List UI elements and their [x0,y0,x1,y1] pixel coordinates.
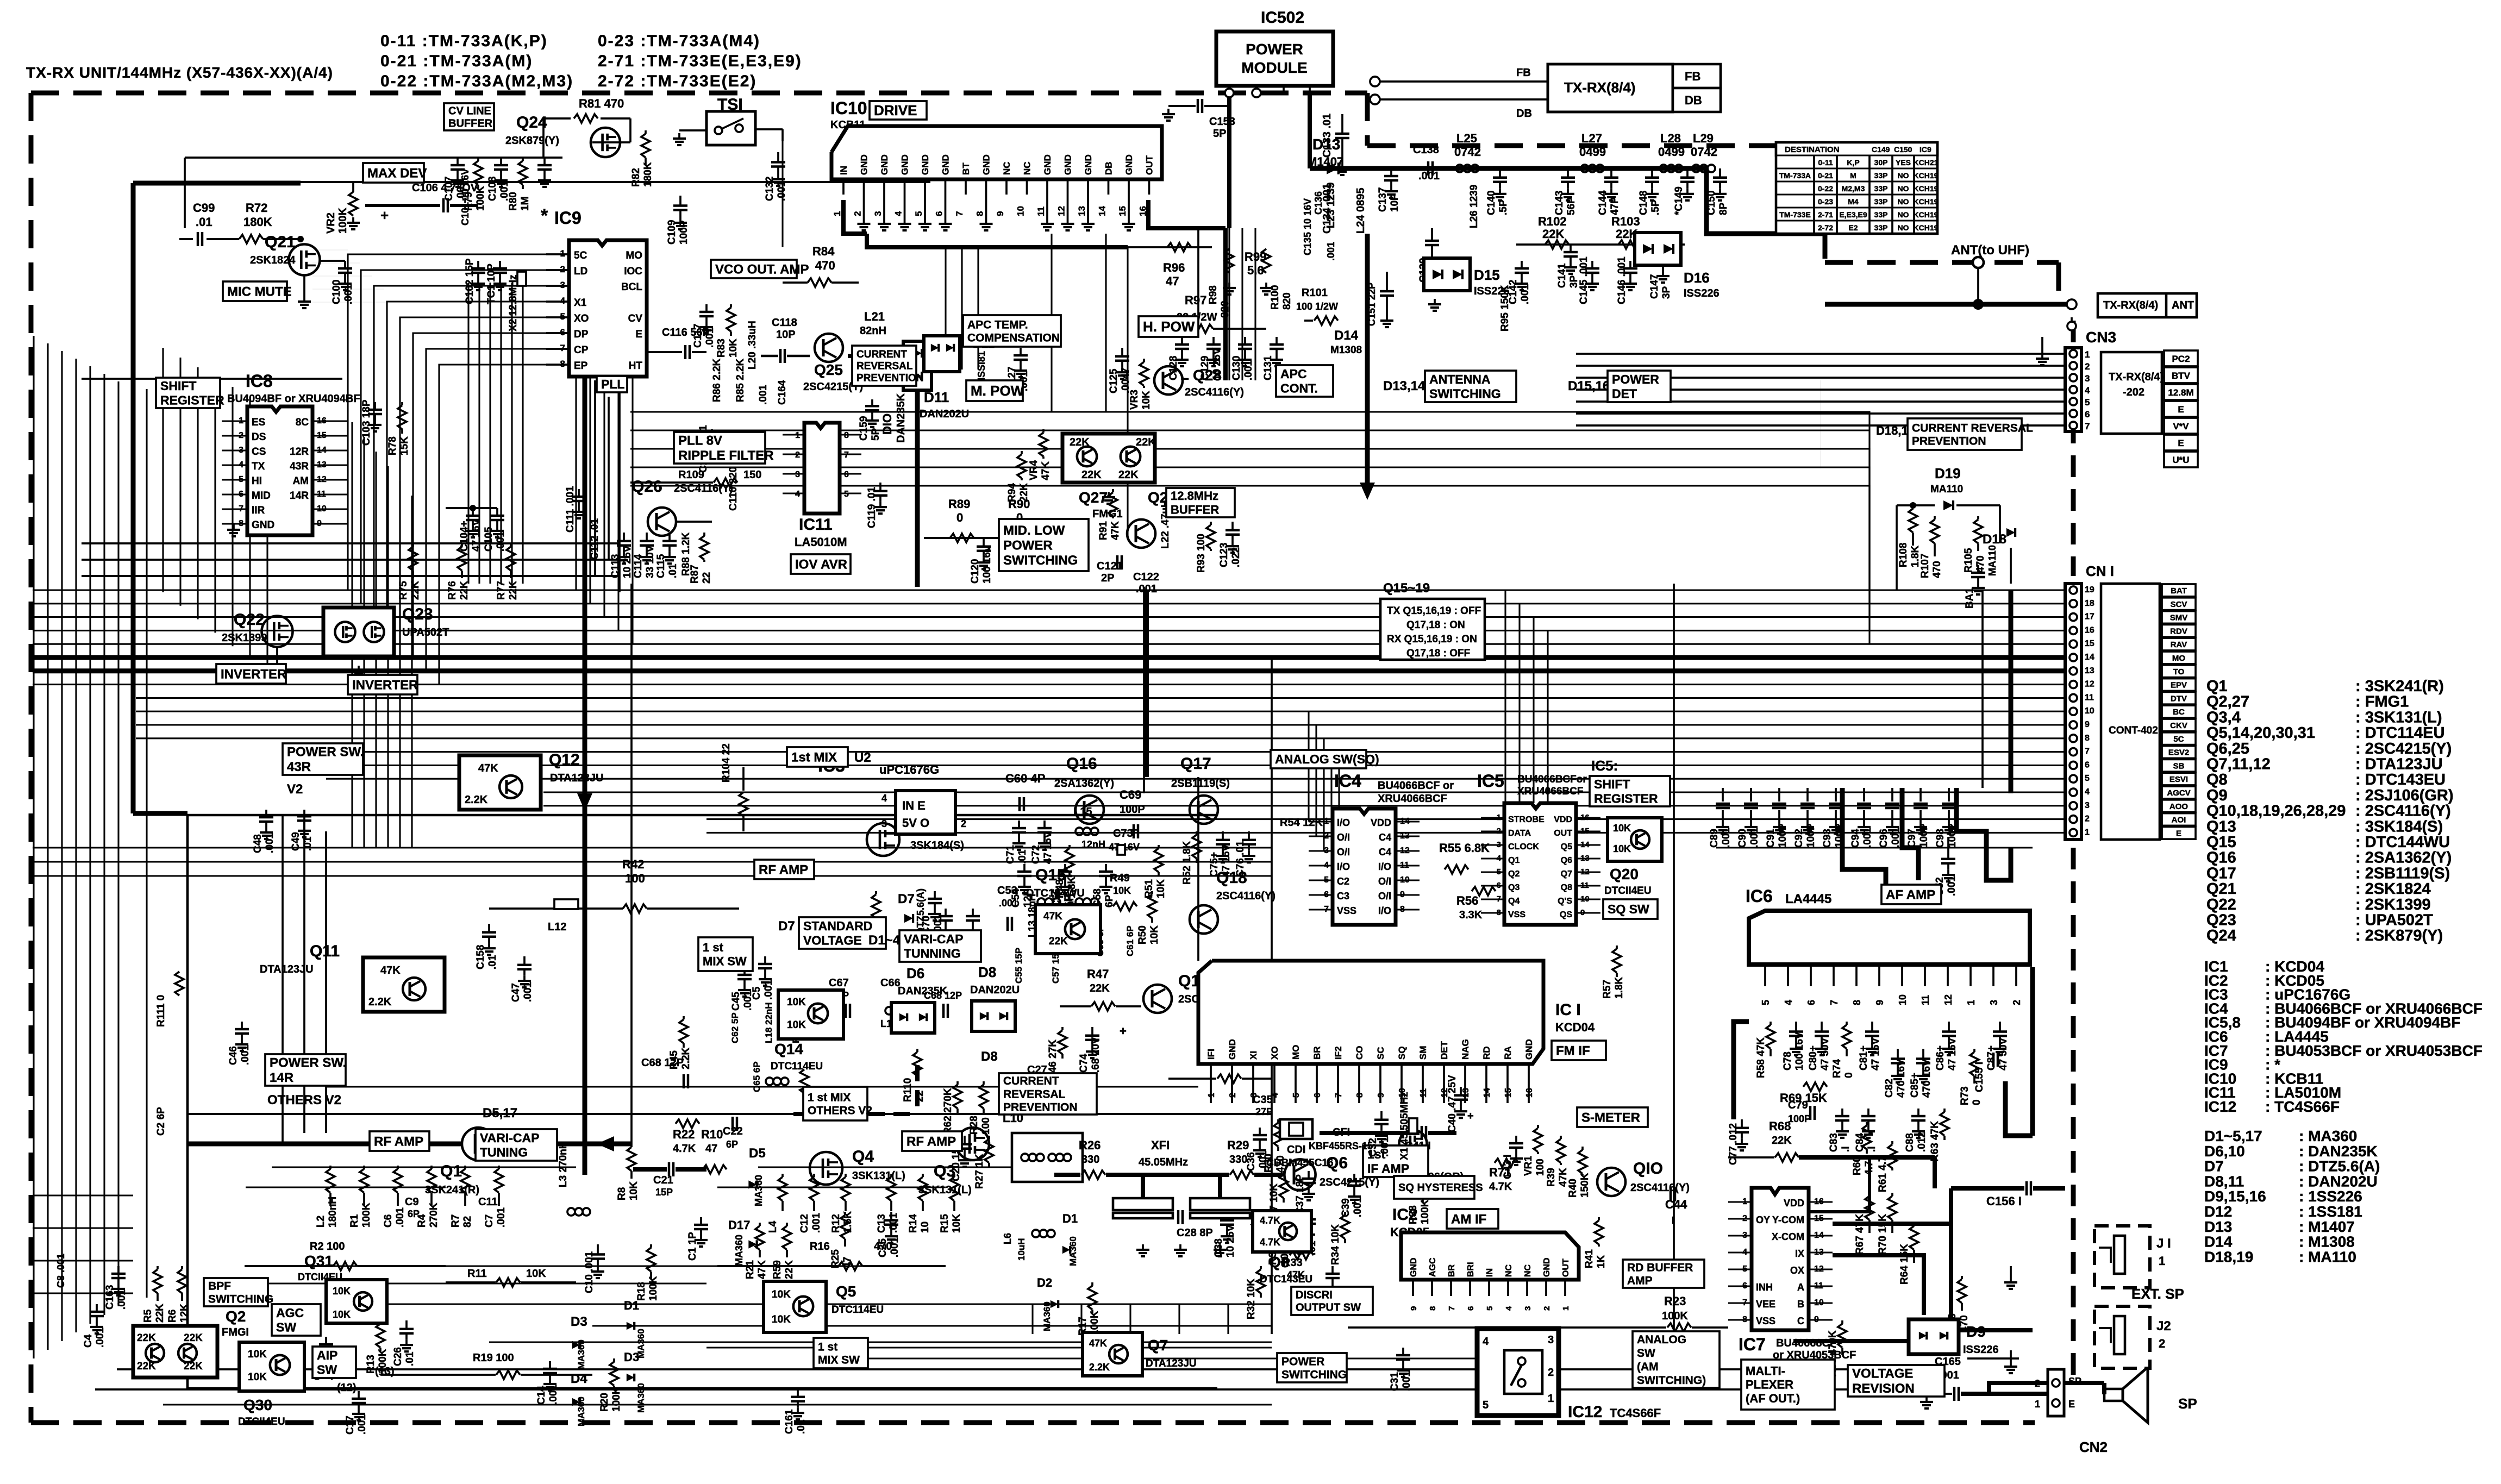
svg-text:C137: C137 [1377,187,1389,212]
svg-text:.001: .001 [889,1237,901,1257]
svg-text:COMPENSATION: COMPENSATION [967,331,1060,344]
svg-text:CONT.: CONT. [1280,381,1318,395]
svg-text:QS: QS [1560,910,1572,919]
svg-text:C1 1P: C1 1P [687,1232,698,1261]
svg-text:ESVI: ESVI [2169,775,2188,784]
svg-text:100 1/2W: 100 1/2W [1296,301,1338,312]
svg-text:R109: R109 [678,469,704,481]
svg-text:ES: ES [252,417,265,428]
svg-text:IC12: IC12 [2204,1098,2236,1115]
svg-text:D12: D12 [2204,1203,2232,1220]
svg-text:SCV: SCV [2171,600,2187,609]
svg-text:PC2: PC2 [2172,354,2190,364]
svg-text:DTC143EU: DTC143EU [1260,1274,1312,1285]
svg-text:E: E [2176,829,2181,838]
svg-text:TX-RX(8/4): TX-RX(8/4) [1564,79,1635,96]
svg-text:IC10: IC10 [830,98,867,118]
svg-text:22K: 22K [154,1304,166,1323]
svg-text:MA360: MA360 [734,1235,745,1266]
svg-text:D1: D1 [1062,1212,1078,1225]
svg-text:C100: C100 [331,280,342,304]
svg-text:2: 2 [2085,361,2090,372]
svg-text:2P: 2P [1101,572,1114,584]
svg-text:SWITCHING): SWITCHING) [1637,1374,1706,1387]
svg-text:.001: .001 [1520,284,1531,304]
svg-text:: UPA502T: : UPA502T [2355,912,2433,929]
svg-text:4: 4 [1783,1000,1794,1005]
svg-text:Q21: Q21 [265,233,296,251]
svg-text:R62 270K: R62 270K [942,1088,954,1135]
svg-text:2: 2 [1548,1367,1554,1379]
svg-text:100P: 100P [678,220,690,245]
svg-text:*C149: *C149 [1673,186,1685,215]
svg-text:R101: R101 [1302,287,1328,299]
svg-text:GND: GND [859,154,870,175]
svg-text:INVERTER: INVERTER [352,678,418,692]
svg-text:.01: .01 [1017,849,1028,864]
svg-text:CP: CP [574,345,589,356]
svg-text:1: 1 [1207,1093,1216,1098]
svg-text:10K: 10K [1113,885,1131,896]
svg-text:: 1SS181: : 1SS181 [2299,1203,2362,1220]
svg-text:C47: C47 [510,983,522,1002]
svg-text:7: 7 [2085,747,2090,756]
svg-text:GND: GND [920,154,930,175]
svg-text:C119 .01: C119 .01 [866,487,878,528]
svg-text:C163: C163 [104,1285,116,1310]
svg-text:D1~5,17: D1~5,17 [2204,1128,2262,1144]
svg-text:R52 1.8K: R52 1.8K [1181,841,1193,885]
svg-text:2.2K: 2.2K [1089,1362,1110,1373]
svg-text:POWER: POWER [1612,372,1659,386]
svg-text:FB: FB [1516,67,1531,79]
svg-text:4: 4 [893,211,904,216]
svg-text:22K: 22K [1772,1135,1792,1147]
svg-text:: DTA123JU: : DTA123JU [2355,756,2443,773]
svg-text:470: 470 [815,259,835,272]
svg-text:C86+: C86+ [1935,1045,1946,1070]
svg-text:-202: -202 [2123,386,2144,398]
svg-text:TX-RX(8/4): TX-RX(8/4) [2103,299,2158,311]
svg-text:R107: R107 [1919,554,1931,578]
svg-text:uPC1676G: uPC1676G [879,763,939,777]
svg-text:EXT. SP: EXT. SP [2131,1286,2184,1302]
svg-text:R84: R84 [812,245,835,258]
svg-text:C: C [1797,1316,1804,1326]
svg-text:10K: 10K [1149,925,1160,944]
svg-text:Q18: Q18 [1216,869,1247,887]
svg-text:4.7K: 4.7K [1489,1181,1512,1193]
svg-text:C146 .001: C146 .001 [1616,256,1628,304]
svg-text:SWITCHING: SWITCHING [208,1293,273,1305]
svg-text:100K: 100K [648,1276,659,1301]
svg-text:PLEXER: PLEXER [1746,1378,1793,1392]
svg-text:R16: R16 [810,1241,830,1253]
svg-text:R56: R56 [1456,894,1478,907]
svg-text:150: 150 [743,469,761,481]
svg-text:C31: C31 [1389,1372,1400,1391]
svg-text:MA110: MA110 [1930,484,1963,495]
svg-text:M1308: M1308 [1330,345,1362,356]
svg-text:13: 13 [2085,666,2094,675]
svg-text:47K: 47K [1040,461,1052,480]
svg-text:C8 .001: C8 .001 [55,1254,66,1288]
svg-text:BU4094BF or XRU4094BF: BU4094BF or XRU4094BF [227,393,360,405]
svg-text:D2: D2 [1037,1276,1052,1289]
svg-text:3SK184(S): 3SK184(S) [910,840,964,851]
svg-text:VARI-CAP: VARI-CAP [904,932,963,946]
svg-text:IC5: IC5 [1477,771,1504,791]
svg-text:IC6: IC6 [1746,886,1773,906]
svg-text:10K: 10K [1141,391,1152,410]
svg-text:3.3K: 3.3K [1459,909,1483,921]
svg-text:D18,19: D18,19 [2204,1248,2253,1265]
svg-text:5: 5 [1292,1093,1301,1098]
svg-text:47 50V: 47 50V [1998,1037,2009,1070]
svg-text:10K: 10K [1155,879,1167,898]
svg-text:C26: C26 [392,1347,404,1366]
svg-text:.001: .001 [240,1045,251,1065]
svg-text:C97: C97 [1906,829,1918,848]
svg-text:12: 12 [2085,680,2094,689]
svg-text:REGISTER: REGISTER [160,393,224,407]
svg-text:4.7K: 4.7K [1260,1237,1280,1248]
svg-text:C53: C53 [997,885,1017,897]
svg-text:: 1SS226: : 1SS226 [2299,1188,2362,1205]
svg-text:1 st MIX: 1 st MIX [808,1091,851,1104]
svg-text:VDD: VDD [1784,1198,1804,1209]
svg-text:REGISTER: REGISTER [1594,791,1658,805]
svg-text:MO: MO [2172,654,2185,663]
svg-text:4: 4 [2085,385,2090,396]
svg-text:4.7K: 4.7K [673,1143,696,1155]
svg-text:R70 15K: R70 15K [1877,1214,1889,1255]
svg-text:0-11 :TM-733A(K,P): 0-11 :TM-733A(K,P) [380,32,548,50]
svg-text:VR2: VR2 [325,212,337,234]
svg-text:BTV: BTV [2172,371,2191,381]
svg-text:47K: 47K [756,1260,768,1279]
svg-text:E: E [2178,404,2184,415]
svg-text:.001: .001 [395,1207,406,1228]
svg-text:15: 15 [1504,1088,1513,1098]
svg-text:R40: R40 [1567,1179,1579,1198]
svg-text:CONT-402: CONT-402 [2109,725,2158,736]
svg-text:GND: GND [1524,1039,1534,1060]
svg-text:C150: C150 [1894,145,1912,154]
svg-text:RDV: RDV [2170,627,2187,636]
svg-text:100P: 100P [1120,804,1145,816]
svg-text:*: * [541,205,548,226]
svg-text:DTC114EU: DTC114EU [771,1061,823,1072]
svg-text:270K: 270K [428,1203,440,1228]
svg-text:BAT: BAT [2171,586,2187,596]
svg-text:IC2: IC2 [1392,1206,1418,1224]
svg-text:OUT: OUT [1554,829,1572,838]
svg-text:.001: .001 [1401,1371,1412,1391]
svg-text:STANDARD: STANDARD [803,919,872,933]
svg-text:Q15: Q15 [2206,834,2236,851]
svg-text:O/I: O/I [1378,891,1391,901]
svg-text:3: 3 [2085,801,2090,810]
svg-text:R39: R39 [1546,1168,1557,1187]
svg-text:SP: SP [2178,1395,2197,1412]
svg-text:.01: .01 [667,563,679,578]
svg-text:L4: L4 [767,1220,779,1233]
svg-text:DAN202U: DAN202U [970,984,1020,996]
svg-text:5C: 5C [574,250,587,261]
svg-text:IX: IX [1795,1248,1804,1259]
svg-text:10P: 10P [1389,193,1400,212]
svg-text:E: E [2178,438,2184,448]
svg-text:Q4: Q4 [852,1148,874,1166]
svg-text:12: 12 [1943,994,1954,1005]
svg-text:VR4: VR4 [1028,460,1040,480]
svg-text:R13: R13 [365,1355,377,1374]
svg-text:CN3: CN3 [2086,329,2116,346]
svg-text:R10: R10 [701,1128,723,1141]
svg-text:: 2SK1824: : 2SK1824 [2355,880,2431,898]
svg-text:10K: 10K [772,1289,791,1300]
svg-text:VCO OUT. AMP: VCO OUT. AMP [715,262,809,277]
svg-text:0: 0 [956,511,963,524]
svg-text:R87: R87 [689,565,701,584]
svg-text:KCH19: KCH19 [1914,223,1939,232]
svg-text:GND: GND [1542,1257,1552,1277]
svg-text:J2: J2 [2156,1319,2171,1333]
svg-text:NAG: NAG [1460,1039,1471,1060]
svg-text:Q13: Q13 [2206,818,2236,835]
svg-text:2: 2 [1542,1306,1552,1311]
svg-text:C140: C140 [1486,191,1497,215]
svg-text:2SC4116(Y): 2SC4116(Y) [1630,1182,1690,1194]
svg-text:R57: R57 [1602,980,1613,999]
svg-text:L23 1239: L23 1239 [1325,182,1337,228]
svg-text:3SK131(L): 3SK131(L) [852,1170,905,1182]
svg-text:SQ HYSTERESS: SQ HYSTERESS [1398,1182,1483,1194]
svg-text:IF AMP: IF AMP [1367,1161,1409,1175]
svg-text:POWER: POWER [1281,1355,1324,1368]
svg-text:10: 10 [2085,706,2094,716]
svg-text:6: 6 [934,211,945,216]
svg-text:AM IF: AM IF [1451,1212,1486,1226]
svg-text:0742: 0742 [1454,145,1481,159]
svg-text:.012: .012 [1916,1132,1928,1152]
svg-text:TX-RX(8/4): TX-RX(8/4) [2109,371,2164,383]
svg-text:: 2SC4116(Y): : 2SC4116(Y) [2355,803,2451,820]
svg-text:6: 6 [2085,760,2090,769]
svg-text:8: 8 [2085,734,2090,743]
svg-text:2SB1119(S): 2SB1119(S) [1171,778,1230,790]
svg-text:C88: C88 [1904,1133,1916,1152]
svg-text:D6,10: D6,10 [2204,1143,2245,1160]
svg-text:Q16: Q16 [1066,755,1097,773]
svg-text:C44: C44 [1665,1198,1687,1211]
svg-text:D15: D15 [1474,267,1500,283]
svg-text:OTHERS V2: OTHERS V2 [267,1093,341,1107]
svg-text:R82: R82 [630,168,642,187]
svg-text:12.8M: 12.8M [2168,387,2193,398]
svg-text:V2: V2 [287,782,303,797]
svg-text:C60 4P: C60 4P [1005,772,1045,785]
svg-text:8C: 8C [296,417,309,428]
svg-text:IC502: IC502 [1261,9,1304,27]
svg-text:RF AMP: RF AMP [374,1134,423,1149]
svg-text:Q5,14,20,30,31: Q5,14,20,30,31 [2206,724,2315,742]
svg-text:ISSI81: ISSI81 [976,351,987,380]
svg-text:14: 14 [1097,206,1108,216]
svg-text:Q5: Q5 [836,1283,856,1300]
svg-text:+: + [1467,1110,1474,1122]
svg-text:R26: R26 [1079,1138,1101,1152]
svg-text:100K: 100K [361,1203,372,1228]
svg-text:FB: FB [1685,70,1700,83]
svg-text:3: 3 [881,818,887,829]
svg-text:DS: DS [252,431,266,443]
svg-text:33P: 33P [1874,197,1888,206]
svg-text:TC4S66F: TC4S66F [1610,1406,1661,1420]
svg-text:22K: 22K [1090,982,1110,994]
svg-text:TX-RX UNIT/144MHz (X57-436X-XX: TX-RX UNIT/144MHz (X57-436X-XX)(A/4) [26,64,333,81]
svg-text:10K: 10K [1613,823,1631,834]
svg-text:1 st: 1 st [703,941,724,954]
svg-text:OUT: OUT [1145,155,1155,176]
svg-text:C93: C93 [1822,829,1833,848]
svg-text:IC5:: IC5: [1591,757,1618,774]
svg-text:Q'S: Q'S [1558,897,1572,906]
svg-text:D8,11: D8,11 [2204,1173,2244,1189]
svg-text:IF2: IF2 [1333,1046,1343,1060]
svg-text:ISS226: ISS226 [1474,285,1510,297]
svg-text:RD: RD [1481,1046,1492,1060]
svg-text:100 16V: 100 16V [1794,1032,1805,1070]
svg-text:: DTC144WU: : DTC144WU [2355,834,2450,851]
svg-text:BR: BR [1312,1046,1322,1060]
svg-text:RAV: RAV [2171,640,2187,649]
svg-text:1M: 1M [520,197,531,211]
svg-text:R27 1K: R27 1K [974,1154,985,1189]
svg-text:BU4066BCF or: BU4066BCF or [1378,780,1454,792]
svg-text:.001: .001 [522,982,534,1002]
svg-text:: 3SK241(R): : 3SK241(R) [2355,678,2444,695]
svg-text:ANT(to UHF): ANT(to UHF) [1951,243,2029,258]
svg-text:11: 11 [2085,693,2094,702]
svg-text:MA360: MA360 [636,1383,646,1413]
svg-text:L25: L25 [1456,132,1477,145]
svg-text:ANALOG SW(SQ): ANALOG SW(SQ) [1275,752,1379,766]
svg-text:100 16V: 100 16V [981,545,993,584]
svg-text:AOO: AOO [2169,802,2189,811]
svg-text:MIX SW: MIX SW [703,954,747,968]
svg-text:.01: .01 [196,215,212,229]
svg-text:43R: 43R [287,760,311,774]
svg-text:XRU4066BCF: XRU4066BCF [1378,793,1447,805]
svg-text:J I: J I [2156,1236,2171,1251]
svg-text:Q17,18 : ON: Q17,18 : ON [1406,619,1465,631]
svg-text:10K: 10K [526,1268,546,1280]
svg-text:Q15: Q15 [1035,866,1066,884]
svg-text:.001: .001 [95,1328,106,1348]
svg-text:7: 7 [1447,1306,1456,1311]
svg-text:R111 0: R111 0 [155,995,167,1027]
svg-text:NO: NO [1898,171,1909,180]
svg-text:D18: D18 [1983,532,2006,547]
svg-text:: BU4053BCF or XRU4053BCF: : BU4053BCF or XRU4053BCF [2265,1042,2483,1059]
svg-text:4: 4 [2085,787,2090,797]
svg-text:TX: TX [252,461,265,472]
svg-text:C145 .001: C145 .001 [1578,256,1590,304]
svg-text:R23: R23 [1664,1294,1686,1308]
svg-text:Q14: Q14 [774,1041,803,1057]
svg-text:22K: 22K [459,581,470,600]
svg-text:R102: R102 [1538,215,1567,228]
svg-text:RA: RA [1503,1046,1513,1060]
svg-text:L29: L29 [1693,132,1714,145]
svg-text:5: 5 [1485,1306,1495,1311]
svg-text:1: 1 [1561,1306,1571,1311]
svg-text:VDD: VDD [1371,817,1391,828]
svg-text:13: 13 [1461,1088,1471,1098]
svg-text:0-21 :TM-733A(M): 0-21 :TM-733A(M) [380,52,533,70]
svg-text:L12: L12 [548,921,566,933]
svg-text:: 2SC4215(Y): : 2SC4215(Y) [2355,740,2452,757]
svg-text:47P: 47P [1609,197,1621,215]
svg-text:.001: .001 [264,833,276,853]
svg-text:5V O: 5V O [902,816,929,830]
svg-text:2: 2 [1228,1093,1237,1098]
svg-text:NO: NO [1898,210,1909,219]
svg-text:2: 2 [853,211,863,216]
svg-text:10K: 10K [333,1286,351,1297]
svg-text:RF AMP: RF AMP [906,1134,956,1149]
svg-text:LD: LD [574,266,587,277]
svg-text:SP: SP [2068,1376,2081,1387]
svg-text:33P: 33P [1874,223,1888,232]
svg-text:2SC4116(Y): 2SC4116(Y) [1216,890,1275,902]
svg-text:M. POW: M. POW [971,383,1024,399]
svg-text:3: 3 [1523,1306,1533,1311]
svg-text:GND: GND [1042,154,1053,175]
svg-text:22K: 22K [508,581,519,600]
svg-text:.001: .001 [999,898,1018,909]
svg-text:CKV: CKV [2170,721,2187,730]
svg-text:2SA1362(Y): 2SA1362(Y) [1054,778,1114,790]
svg-text:Q1: Q1 [1508,856,1520,865]
svg-text:IOV AVR: IOV AVR [795,557,847,572]
svg-text:.001: .001 [1243,360,1254,380]
svg-text:0499: 0499 [1579,145,1606,159]
svg-text:22K: 22K [1070,436,1090,448]
svg-text:6: 6 [2085,409,2090,419]
svg-text:2: 2 [2011,1000,2022,1005]
svg-text:Q3: Q3 [1508,883,1520,892]
svg-text:E,E3,E9: E,E3,E9 [1839,210,1867,219]
svg-text:2.2K: 2.2K [465,794,488,806]
svg-text:Q2,27: Q2,27 [2206,693,2249,711]
svg-text:NC: NC [1523,1264,1533,1277]
svg-text:L6: L6 [1002,1233,1013,1244]
svg-text:.I: .I [1866,1146,1878,1152]
svg-text:Q31: Q31 [304,1253,333,1269]
svg-text:100K: 100K [1662,1310,1688,1322]
svg-text:C150: C150 [1706,191,1717,215]
svg-text:C11: C11 [478,1196,498,1208]
svg-text:3: 3 [1548,1334,1554,1346]
svg-text:XO: XO [574,313,589,324]
svg-text:5: 5 [2085,397,2090,408]
svg-text:IN: IN [839,166,849,175]
svg-text:X1: X1 [574,297,587,309]
svg-text:DET: DET [1439,1041,1449,1060]
